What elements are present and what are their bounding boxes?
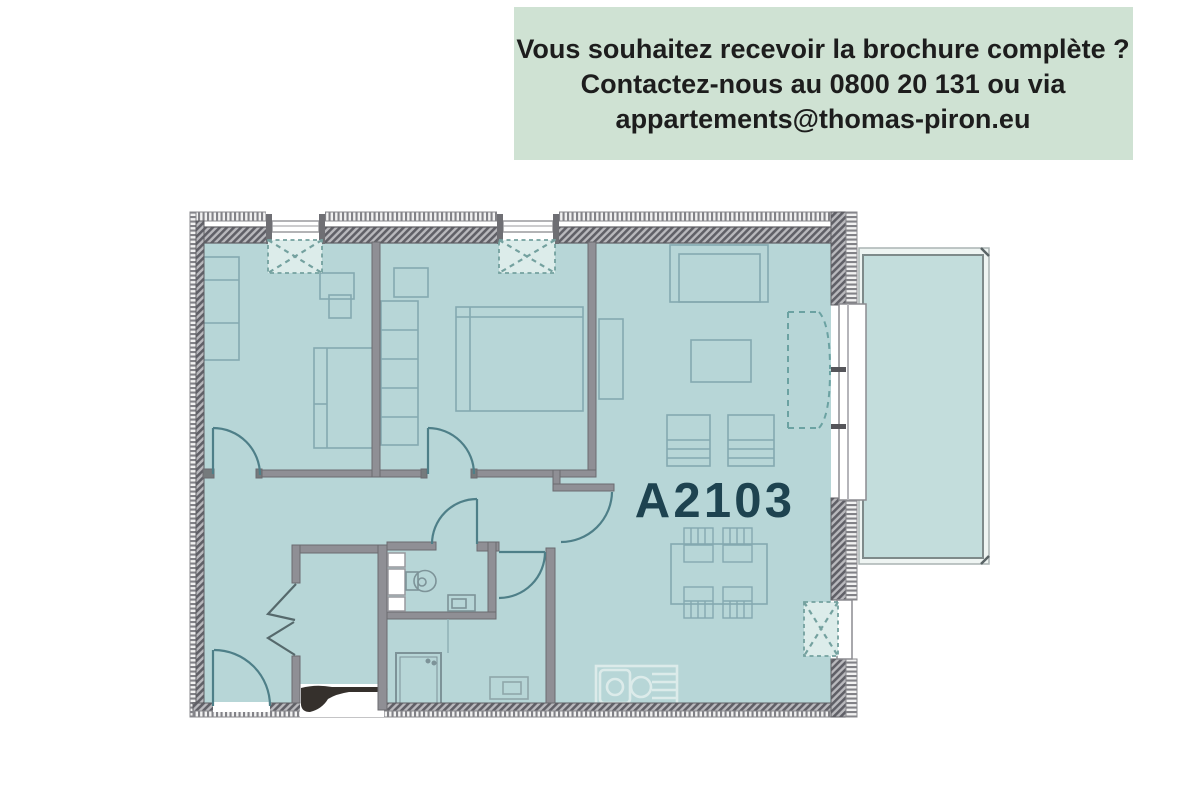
svg-text:A2103: A2103	[635, 474, 795, 528]
svg-text:Contactez-nous au 0800 20 131: Contactez-nous au 0800 20 131 ou via	[581, 69, 1067, 99]
svg-text:appartements@thomas-piron.eu: appartements@thomas-piron.eu	[616, 104, 1031, 134]
svg-text:Vous souhaitez recevoir la bro: Vous souhaitez recevoir la brochure comp…	[516, 34, 1129, 64]
